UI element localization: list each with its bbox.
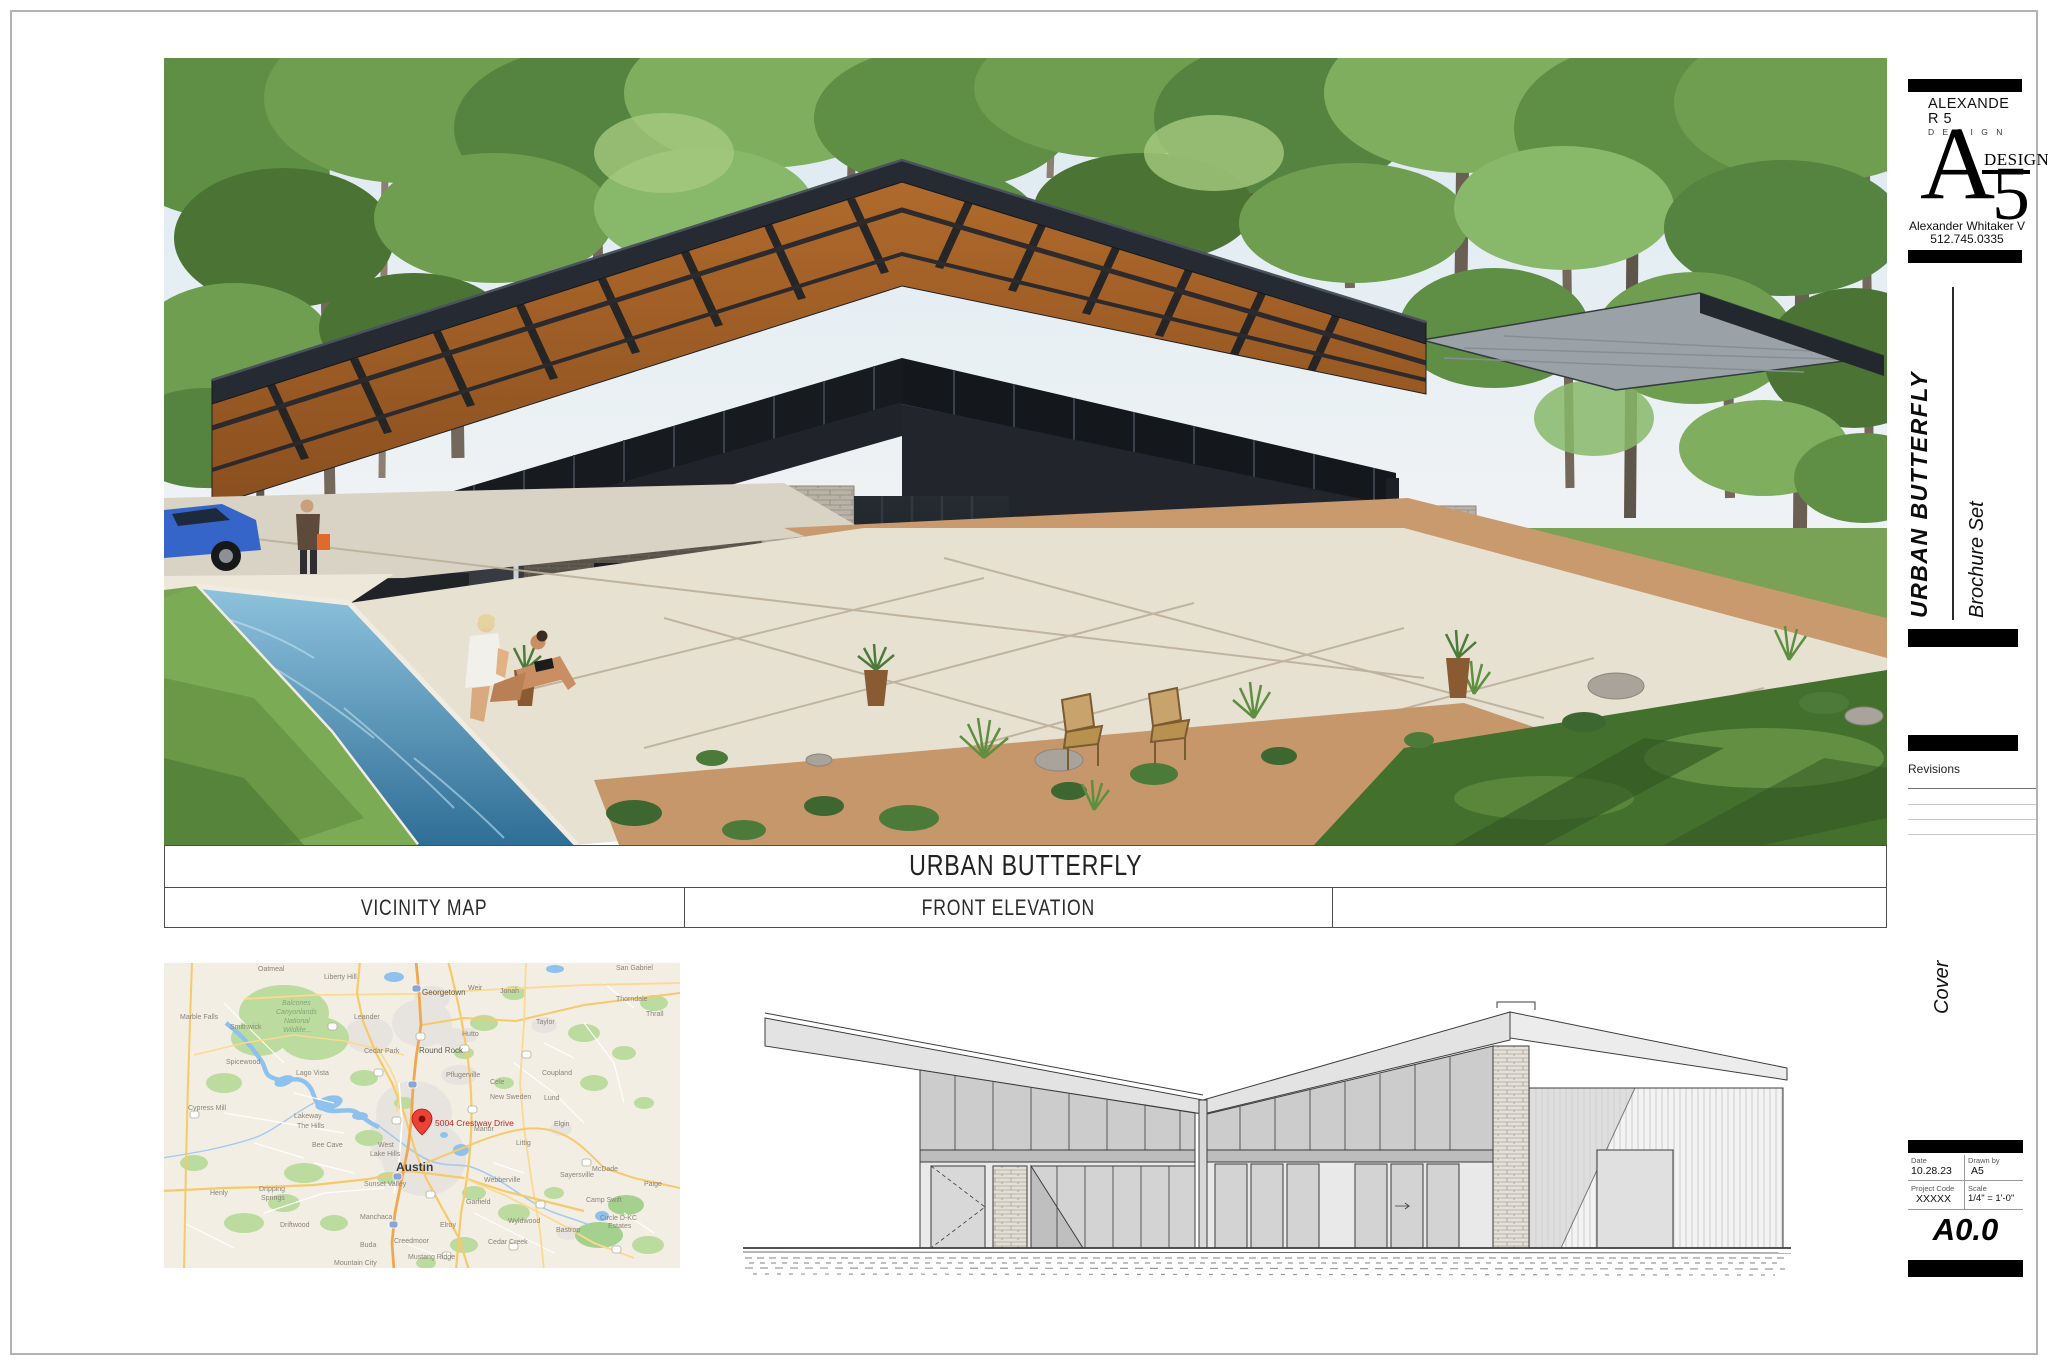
drawn-by-label: Drawn by <box>1968 1156 2000 1165</box>
sidebar-bar-1 <box>1908 629 2018 647</box>
map-label: Dripping <box>259 1186 285 1193</box>
map-label: Hutto <box>462 1031 479 1038</box>
map-label: Leander <box>354 1014 380 1021</box>
map-label: Marble Falls <box>180 1014 219 1021</box>
map-label: Lake Hills <box>370 1151 401 1158</box>
map-label: Wildlife... <box>283 1027 311 1034</box>
date-value: 10.28.23 <box>1911 1165 1952 1177</box>
map-label: Jonah <box>500 988 519 995</box>
map-label: Creedmoor <box>394 1238 430 1245</box>
map-label: Sayersville <box>560 1172 594 1179</box>
map-label: The Hills <box>297 1123 325 1130</box>
panel-label-vicinity-map: VICINITY MAP <box>165 888 685 927</box>
map-label: Smithwick <box>230 1024 262 1031</box>
map-label: Littig <box>516 1140 531 1147</box>
logo-top-bar <box>1908 79 2022 92</box>
set-name-vertical: Brochure Set <box>1966 501 1989 618</box>
firm-contact: Alexander Whitaker V 512.745.0335 <box>1908 220 2026 246</box>
project-name-vertical: URBAN BUTTERFLY <box>1906 371 1933 618</box>
map-label: Cypress Mill <box>188 1105 227 1112</box>
map-label: Spicewood <box>226 1059 260 1066</box>
map-label: Springs <box>261 1195 285 1202</box>
info-top-bar <box>1908 1140 2023 1153</box>
cover-rendering-image <box>164 58 1887 845</box>
map-label: Henly <box>210 1190 228 1197</box>
logo-bottom-bar <box>1908 250 2022 263</box>
sidebar-bar-2 <box>1908 735 2018 751</box>
map-label: Georgetown <box>422 988 466 997</box>
sheet-title-vertical: Cover <box>1931 961 1954 1014</box>
map-label: San Gabriel <box>616 965 653 972</box>
map-label: Camp Swift <box>586 1197 622 1204</box>
map-label: Manchaca <box>360 1214 392 1221</box>
revision-line <box>1908 819 2036 820</box>
sheet-number: A0.0 <box>1908 1212 2023 1248</box>
red-bag <box>317 534 330 550</box>
map-label: Cele <box>490 1079 505 1086</box>
project-code-label: Project Code <box>1911 1184 1954 1193</box>
map-label: West <box>378 1142 394 1149</box>
map-label: Taylor <box>536 1019 555 1026</box>
revision-line <box>1908 788 2036 789</box>
map-label: Cedar Creek <box>488 1239 528 1246</box>
map-label: Paige <box>644 1181 662 1188</box>
map-label: Garfield <box>466 1199 491 1206</box>
map-label: Elroy <box>440 1222 456 1229</box>
pin-address-label: 5004 Crestway Drive <box>435 1118 514 1128</box>
map-label: New Sweden <box>490 1094 531 1101</box>
map-label: Lund <box>544 1095 560 1102</box>
date-label: Date <box>1911 1156 1927 1165</box>
firm-contact-phone: 512.745.0335 <box>1908 233 2026 246</box>
map-label: Pflugerville <box>446 1072 480 1079</box>
map-label: Canyonlands <box>276 1009 317 1016</box>
map-label: Buda <box>360 1242 376 1249</box>
revision-line <box>1908 834 2036 835</box>
map-label: Cedar Park <box>364 1048 400 1055</box>
sidebar-divider-line <box>1952 287 1954 620</box>
map-label: Driftwood <box>280 1222 310 1229</box>
map-label: Mustang Ridge <box>408 1254 455 1261</box>
project-code-value: XXXXX <box>1916 1193 1951 1205</box>
map-label: Balcones <box>282 1000 311 1007</box>
front-elevation-drawing <box>735 1000 1805 1300</box>
project-title-row: URBAN BUTTERFLY <box>165 846 1886 888</box>
info-divider <box>1908 1209 2023 1210</box>
project-title: URBAN BUTTERFLY <box>909 850 1142 883</box>
map-label: Wyldwood <box>508 1218 540 1225</box>
map-label: Sunset Valley <box>364 1181 407 1188</box>
map-label: Lago Vista <box>296 1070 329 1077</box>
sheet-page: URBAN BUTTERFLY VICINITY MAP FRONT ELEVA… <box>0 0 2048 1365</box>
map-label: Lakeway <box>294 1113 322 1120</box>
info-divider <box>1908 1180 2023 1181</box>
map-label: Webberville <box>484 1177 521 1184</box>
info-divider-vertical <box>1964 1155 1965 1209</box>
map-label: National <box>284 1018 310 1025</box>
elev-door-left <box>931 1166 985 1248</box>
map-label: McDade <box>592 1166 618 1173</box>
panel-label-front-elevation: FRONT ELEVATION <box>685 888 1333 927</box>
map-label: Round Rock <box>419 1046 464 1055</box>
map-label: Coupland <box>542 1070 572 1077</box>
map-label: Circle D-KC <box>600 1215 637 1222</box>
map-label: Thorndale <box>616 996 648 1003</box>
revisions-label: Revisions <box>1908 762 1960 776</box>
scale-value: 1/4" = 1'-0" <box>1968 1193 2014 1204</box>
map-label: Oatmeal <box>258 966 285 973</box>
map-label: Liberty Hill <box>324 974 357 981</box>
map-label: Mountain City <box>334 1260 377 1267</box>
map-label: Elgin <box>554 1121 570 1128</box>
vicinity-map-image: OatmealLiberty HillGeorgetownWeirJonahSa… <box>164 963 680 1268</box>
elev-roof-wing <box>1510 1012 1787 1080</box>
drawn-by-value: A5 <box>1971 1165 1984 1177</box>
bottom-bar <box>1908 1260 2023 1277</box>
map-label: Bee Cave <box>312 1142 343 1149</box>
elev-wing-door <box>1597 1150 1673 1248</box>
panel-label-empty <box>1333 888 1886 927</box>
elev-ground-hatch <box>745 1258 1785 1275</box>
revision-line <box>1908 804 2036 805</box>
map-label: Thrall <box>646 1011 664 1018</box>
map-label: Estates <box>608 1223 632 1230</box>
map-label: Austin <box>396 1160 433 1174</box>
title-block-table: URBAN BUTTERFLY VICINITY MAP FRONT ELEVA… <box>164 845 1887 928</box>
map-label: Bastrop <box>556 1227 580 1234</box>
map-label: Weir <box>468 985 483 992</box>
scale-label: Scale <box>1968 1184 1987 1193</box>
